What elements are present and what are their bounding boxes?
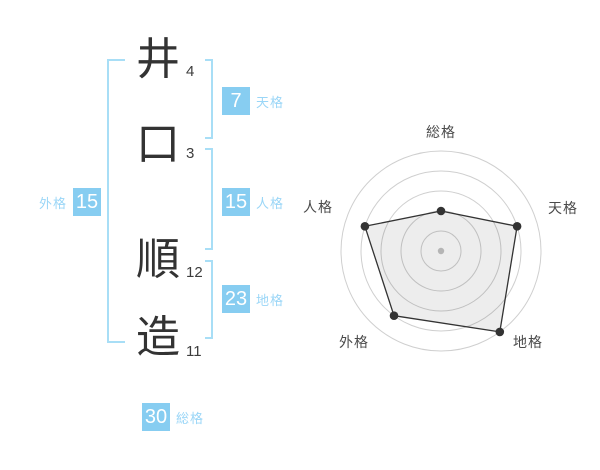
gaikaku-value-badge: 15 (73, 188, 101, 216)
radar-axis-label: 地格 (513, 334, 543, 350)
jinkaku-bracket (205, 148, 213, 250)
stroke-count-2: 3 (186, 146, 194, 162)
chikaku-bracket (205, 260, 213, 339)
jinkaku-badge-group: 15 人格 (222, 188, 284, 216)
radar-data-point (437, 207, 446, 216)
name-analysis-page: 井 口 順 造 4 3 12 11 7 天格 15 人格 23 地格 外格 15… (0, 0, 600, 470)
radar-axis-label: 人格 (303, 199, 333, 215)
radar-axis-label: 天格 (548, 200, 578, 216)
fortune-radar-chart: 総格天格地格外格人格 (291, 116, 591, 386)
gaikaku-bracket (107, 59, 125, 343)
stroke-count-4: 11 (186, 344, 202, 360)
name-character-3: 順 (136, 238, 180, 282)
jinkaku-value-badge: 15 (222, 188, 250, 216)
chikaku-label: 地格 (256, 290, 284, 309)
tenkaku-label: 天格 (256, 92, 284, 111)
stroke-count-1: 4 (186, 64, 194, 80)
tenkaku-badge-group: 7 天格 (222, 87, 284, 115)
soukaku-badge-group: 30 総格 (142, 403, 204, 431)
radar-data-point (361, 222, 370, 231)
soukaku-value-badge: 30 (142, 403, 170, 431)
chikaku-value-badge: 23 (222, 285, 250, 313)
radar-axis-label: 総格 (426, 124, 456, 140)
name-character-2: 口 (136, 123, 180, 167)
radar-data-point (513, 222, 522, 231)
name-character-4: 造 (136, 316, 180, 360)
tenkaku-bracket (205, 59, 213, 139)
tenkaku-value-badge: 7 (222, 87, 250, 115)
gaikaku-label: 外格 (39, 193, 67, 212)
name-character-1: 井 (136, 38, 180, 82)
radar-data-polygon (365, 211, 517, 332)
chikaku-badge-group: 23 地格 (222, 285, 284, 313)
gaikaku-badge-group: 外格 15 (39, 188, 101, 216)
radar-chart-svg: 総格天格地格外格人格 (291, 116, 591, 386)
stroke-count-3: 12 (186, 265, 203, 281)
radar-axis-label: 外格 (339, 334, 369, 350)
radar-center-dot (438, 248, 444, 254)
radar-data-point (390, 311, 399, 320)
soukaku-label: 総格 (176, 408, 204, 427)
radar-data-point (496, 328, 505, 337)
jinkaku-label: 人格 (256, 193, 284, 212)
